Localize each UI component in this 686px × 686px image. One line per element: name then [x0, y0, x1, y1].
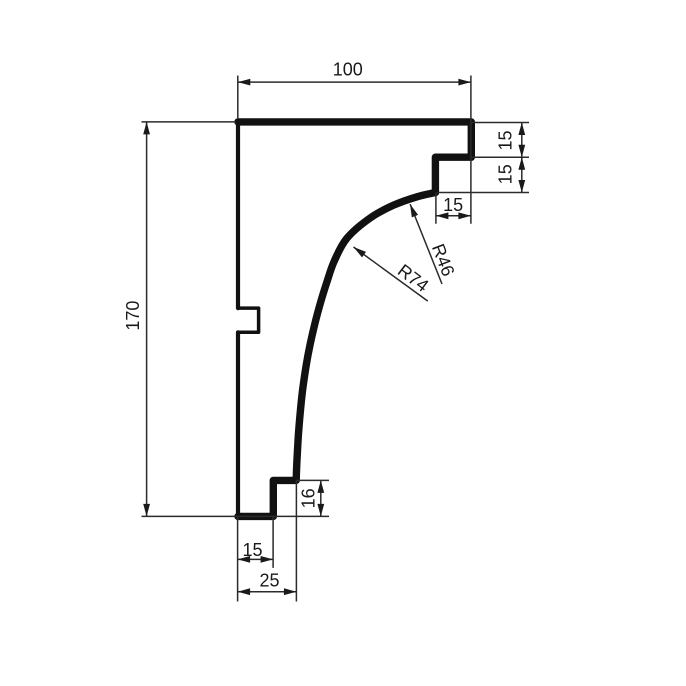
svg-text:15: 15 — [443, 195, 463, 215]
svg-text:170: 170 — [123, 301, 143, 331]
svg-text:25: 25 — [259, 571, 279, 591]
svg-text:16: 16 — [299, 488, 319, 508]
svg-text:100: 100 — [333, 59, 363, 79]
svg-text:15: 15 — [242, 540, 262, 560]
svg-text:15: 15 — [496, 130, 516, 150]
svg-text:15: 15 — [496, 164, 516, 184]
